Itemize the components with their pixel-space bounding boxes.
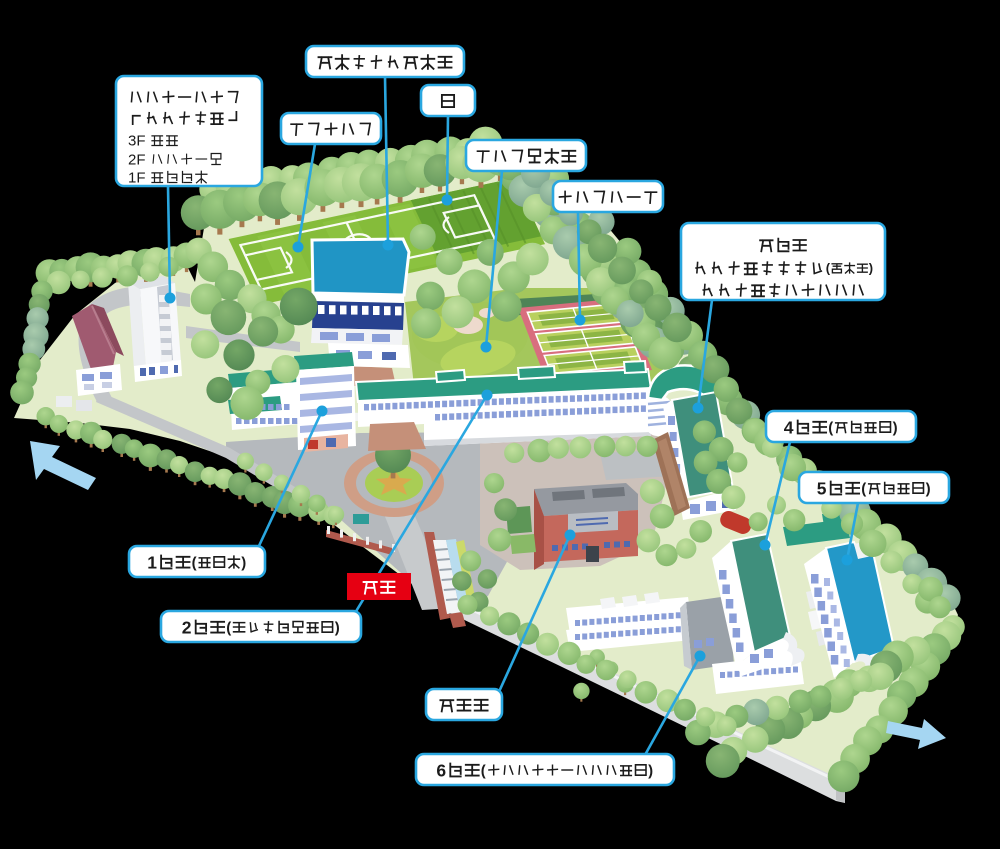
svg-text:2: 2 (182, 617, 192, 637)
svg-text:(: ( (826, 261, 831, 276)
svg-text:(: ( (861, 480, 866, 497)
svg-text:): ) (869, 261, 873, 276)
svg-text:): ) (926, 480, 931, 497)
svg-text:4: 4 (784, 417, 794, 437)
svg-text:3F: 3F (128, 132, 146, 149)
svg-text:(: ( (192, 554, 197, 571)
svg-text:1: 1 (147, 552, 157, 572)
svg-text:(: ( (828, 419, 833, 436)
svg-text:1F: 1F (128, 169, 146, 186)
svg-text:2F: 2F (128, 151, 146, 168)
svg-text:): ) (335, 619, 340, 636)
svg-text:(: ( (481, 762, 486, 779)
svg-text:(: ( (226, 619, 231, 636)
svg-text:): ) (241, 554, 246, 571)
svg-text:): ) (893, 419, 898, 436)
svg-text:6: 6 (436, 760, 446, 780)
svg-text:): ) (648, 762, 653, 779)
svg-text:5: 5 (817, 478, 827, 498)
